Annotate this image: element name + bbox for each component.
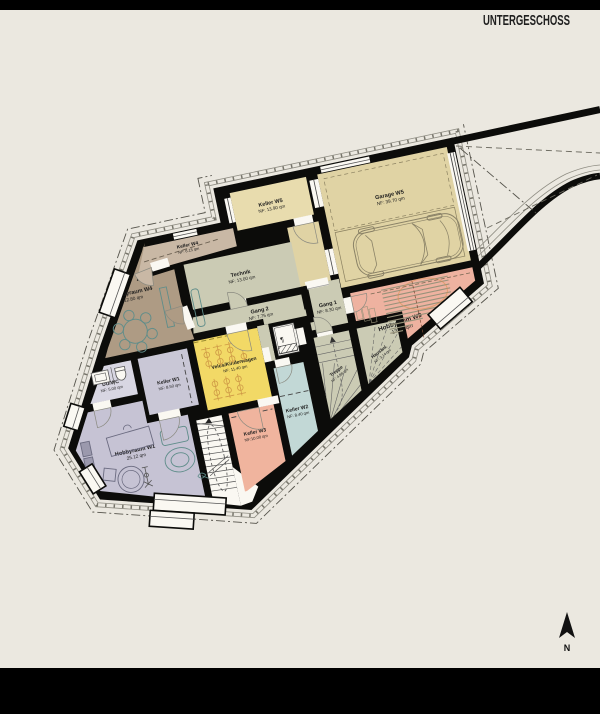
svg-text:N: N <box>564 643 571 653</box>
svg-text:UNTERGESCHOSS: UNTERGESCHOSS <box>483 12 570 29</box>
